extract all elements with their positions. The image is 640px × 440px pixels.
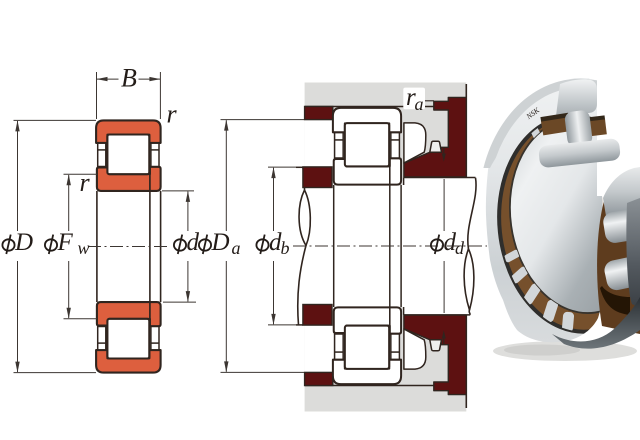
svg-text:r: r — [80, 168, 91, 197]
svg-text:B: B — [121, 64, 137, 93]
svg-text:d: d — [455, 238, 465, 258]
svg-text:w: w — [78, 238, 90, 258]
svg-text:D: D — [14, 229, 33, 256]
svg-text:a: a — [232, 238, 241, 258]
svg-text:a: a — [415, 94, 424, 114]
svg-text:d: d — [187, 229, 200, 256]
svg-text:F: F — [57, 229, 74, 256]
svg-text:b: b — [281, 238, 290, 258]
svg-text:D: D — [211, 229, 230, 256]
svg-text:r: r — [167, 100, 178, 129]
